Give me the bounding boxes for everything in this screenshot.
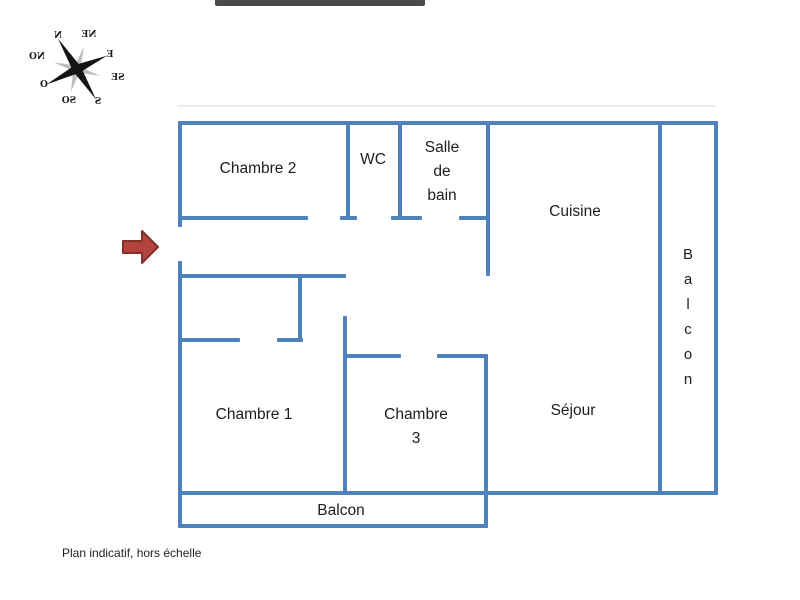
wall-balcony-right-inner: [658, 121, 662, 495]
wall-chambre3-top-left: [345, 354, 401, 358]
room-label-wc: WC: [360, 148, 386, 172]
room-label-balcon-bottom: Balcon: [317, 499, 364, 523]
wall-cuisine-left: [486, 121, 490, 276]
wall-closet-right: [298, 274, 302, 342]
wall-left-upper: [178, 121, 182, 227]
faint-artifact-line: [178, 105, 716, 107]
compass-label-e: E: [107, 50, 114, 60]
plan-footnote: Plan indicatif, hors échelle: [62, 546, 201, 560]
room-label-chambre1: Chambre 1: [216, 403, 293, 427]
room-label-chambre3: Chambre 3: [381, 403, 451, 451]
wall-chambre2-wc-divider: [346, 121, 350, 220]
compass-label-so: SO: [62, 96, 76, 106]
room-label-chambre2: Chambre 2: [220, 157, 297, 181]
compass-star-icon: [17, 15, 139, 127]
wall-wc-sdb-divider: [398, 121, 402, 220]
compass-label-se: SE: [111, 73, 124, 83]
compass-label-o: O: [40, 80, 48, 90]
wall-bottom-outer: [178, 491, 718, 495]
wall-sdb-bottom-right-stub: [459, 216, 488, 220]
compass-label-no: NO: [29, 52, 45, 62]
wall-balcony-right-outer: [714, 121, 718, 495]
compass-label-n: N: [54, 31, 62, 41]
room-label-cuisine: Cuisine: [549, 200, 601, 224]
compass-label-s: S: [95, 97, 102, 107]
compass-label-ne: NE: [81, 30, 96, 40]
entrance-arrow-icon: [121, 228, 161, 266]
wall-top-outer: [178, 121, 718, 125]
wall-balcony-bottom: [178, 524, 488, 528]
compass-rose: N NE E SE S SO O NO: [17, 15, 139, 127]
room-label-sejour: Séjour: [551, 399, 596, 423]
wall-left-lower: [178, 261, 182, 528]
wall-wc-sdb-bottom-stub: [391, 216, 422, 220]
wall-chambre3-top-right: [437, 354, 488, 358]
room-label-salle-de-bain: Salle de bain: [419, 136, 465, 208]
wall-hallway-bottom: [178, 274, 346, 278]
room-label-balcon-right: Balcon: [683, 242, 693, 392]
wall-chambre2-bottom: [178, 216, 308, 220]
wall-chambre3-right: [484, 354, 488, 528]
cropped-title-remnant: [215, 0, 425, 6]
wall-chambre1-chambre3-divider: [343, 316, 347, 495]
wall-closet-bottom-left: [180, 338, 240, 342]
